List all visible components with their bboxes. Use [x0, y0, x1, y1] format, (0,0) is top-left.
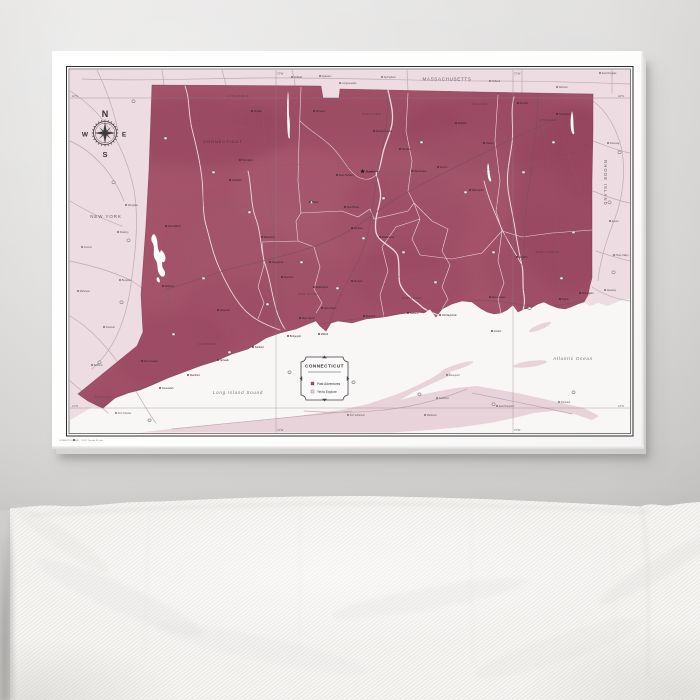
svg-text:Past Adventures: Past Adventures	[317, 382, 341, 386]
svg-text:Danbury: Danbury	[165, 285, 175, 288]
svg-text:East Douglas: East Douglas	[602, 72, 617, 75]
svg-text:White Plains: White Plains	[98, 396, 112, 399]
svg-text:Waterbury: Waterbury	[264, 236, 276, 239]
svg-text:Atlantic Ocean: Atlantic Ocean	[552, 356, 593, 361]
svg-text:Newtown: Newtown	[220, 309, 231, 312]
svg-text:Pawling: Pawling	[120, 231, 129, 234]
svg-text:Meriden: Meriden	[354, 227, 363, 230]
svg-text:Old Saybrook: Old Saybrook	[442, 314, 458, 317]
svg-text:Wingdale: Wingdale	[128, 204, 139, 207]
svg-text:RHODE ISLAND: RHODE ISLAND	[603, 160, 608, 206]
svg-text:Suffield: Suffield	[294, 76, 303, 79]
svg-text:Holland: Holland	[492, 80, 501, 83]
svg-text:Agawam: Agawam	[322, 75, 331, 78]
svg-text:Fairfield: Fairfield	[255, 346, 264, 349]
svg-text:Stamford: Stamford	[190, 374, 201, 377]
svg-text:Milford: Milford	[321, 333, 329, 336]
svg-text:Windsor: Windsor	[402, 148, 411, 151]
svg-text:NEW HAVEN: NEW HAVEN	[298, 292, 319, 296]
svg-text:Hartford: Hartford	[366, 170, 378, 174]
svg-text:Vernon: Vernon	[440, 166, 448, 169]
svg-text:W: W	[82, 132, 89, 139]
svg-text:Webster: Webster	[559, 86, 568, 89]
svg-text:New Milford: New Milford	[168, 225, 182, 228]
svg-text:Katonah: Katonah	[106, 326, 116, 329]
svg-text:Torrington: Torrington	[242, 159, 253, 162]
svg-text:Mahopac: Mahopac	[80, 290, 91, 293]
svg-text:Middletown: Middletown	[382, 236, 395, 239]
svg-text:Port Chester: Port Chester	[118, 412, 132, 415]
svg-text:Brewster: Brewster	[122, 279, 132, 282]
svg-text:Greenport: Greenport	[449, 374, 460, 377]
svg-text:Litchfield: Litchfield	[232, 179, 242, 182]
svg-text:73°W: 73°W	[277, 428, 284, 432]
svg-text:MASSACHUSETTS: MASSACHUSETTS	[422, 77, 471, 82]
svg-text:WINDHAM: WINDHAM	[540, 118, 557, 122]
svg-text:41°N: 41°N	[618, 404, 624, 408]
svg-text:Bedford: Bedford	[94, 364, 103, 367]
svg-text:TOLLAND: TOLLAND	[472, 102, 488, 106]
svg-text:72°W: 72°W	[514, 428, 521, 432]
svg-text:Mystic: Mystic	[562, 298, 570, 301]
svg-text:72°W: 72°W	[514, 72, 521, 76]
svg-text:West Hartford: West Hartford	[339, 174, 355, 177]
svg-text:Durham: Durham	[354, 280, 363, 283]
svg-text:MIDDLESEX: MIDDLESEX	[402, 296, 422, 300]
svg-text:Putnam: Putnam	[520, 102, 528, 105]
svg-text:Thompson: Thompson	[559, 113, 571, 116]
svg-text:Exeter: Exeter	[612, 220, 619, 223]
svg-text:E: E	[122, 132, 127, 139]
svg-text:New Haven: New Haven	[324, 307, 337, 310]
svg-text:Port Jefferson: Port Jefferson	[350, 414, 366, 417]
svg-text:42°N: 42°N	[72, 94, 78, 98]
svg-text:Pascoag: Pascoag	[610, 142, 620, 145]
svg-text:Norwalk: Norwalk	[220, 359, 230, 362]
svg-text:Southold: Southold	[439, 397, 449, 400]
svg-text:Longmeadow: Longmeadow	[342, 82, 357, 85]
svg-text:Naugatuck: Naugatuck	[272, 261, 284, 264]
svg-text:NEW LONDON: NEW LONDON	[536, 250, 560, 254]
svg-text:New Canaan: New Canaan	[144, 360, 159, 363]
svg-text:Springfield: Springfield	[384, 76, 396, 79]
svg-text:Stonington: Stonington	[582, 292, 594, 295]
svg-text:Bridgeport: Bridgeport	[290, 335, 302, 338]
svg-text:New Britain: New Britain	[347, 206, 360, 209]
svg-text:Groton: Groton	[494, 330, 502, 333]
svg-text:Winsted: Winsted	[316, 110, 325, 113]
svg-text:Mattituck: Mattituck	[427, 414, 438, 417]
svg-text:LITCHFIELD: LITCHFIELD	[228, 94, 249, 98]
svg-text:Cheshire: Cheshire	[284, 276, 294, 279]
svg-text:HARTFORD: HARTFORD	[362, 112, 381, 116]
svg-text:Montauk: Montauk	[561, 401, 571, 404]
svg-text:CONNECTICUT MAP ©2021 Thunde: CONNECTICUT MAP ©2021 Thunder B. Labs	[59, 439, 103, 442]
svg-text:Carmel: Carmel	[84, 246, 92, 249]
svg-text:Westerly: Westerly	[607, 289, 617, 292]
svg-text:NEW YORK: NEW YORK	[90, 214, 122, 219]
svg-text:N: N	[102, 109, 109, 119]
svg-text:Norwich: Norwich	[519, 256, 528, 259]
svg-text:Long Island Sound: Long Island Sound	[213, 390, 263, 395]
svg-text:Tolland: Tolland	[486, 142, 494, 145]
svg-text:Manchester: Manchester	[414, 170, 427, 173]
svg-text:Willimantic: Willimantic	[472, 189, 484, 192]
svg-text:Yet to Explore: Yet to Explore	[317, 390, 337, 394]
svg-text:Hope Valley: Hope Valley	[616, 254, 630, 257]
svg-text:73°W: 73°W	[277, 72, 284, 76]
svg-text:East Hampton: East Hampton	[499, 405, 515, 408]
svg-text:Branford: Branford	[366, 315, 376, 318]
svg-text:S: S	[102, 150, 107, 159]
svg-text:Norfolk: Norfolk	[254, 110, 263, 113]
svg-text:Wallingford: Wallingford	[316, 286, 329, 289]
svg-text:West Haven: West Haven	[302, 317, 316, 320]
svg-text:FAIRFIELD: FAIRFIELD	[198, 342, 217, 346]
svg-text:Stafford: Stafford	[458, 122, 467, 125]
svg-text:42°N: 42°N	[618, 94, 624, 98]
svg-text:Bristol: Bristol	[312, 201, 319, 204]
svg-text:New London: New London	[492, 296, 506, 299]
svg-text:CONNECTICUT: CONNECTICUT	[204, 140, 243, 144]
svg-text:41°N: 41°N	[72, 404, 78, 408]
svg-text:CONNECTICUT: CONNECTICUT	[305, 364, 344, 369]
svg-text:Windsor Locks: Windsor Locks	[376, 130, 393, 133]
svg-text:Greenwich: Greenwich	[162, 387, 174, 390]
svg-text:Guilford: Guilford	[410, 312, 419, 315]
